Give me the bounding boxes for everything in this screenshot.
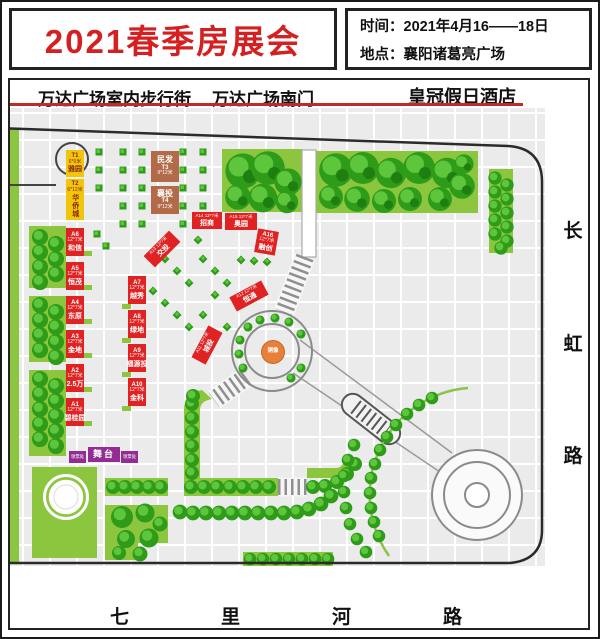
booth-A7-name: 越秀 (130, 293, 144, 301)
booth-A16: A1612*7米融创 (254, 228, 279, 255)
booth-A10: A1012*7米金科 (128, 378, 146, 406)
booth-A12: A12 12*7米恒通 (229, 280, 268, 311)
booth-A5: A512*7米恒茂 (66, 262, 84, 290)
booth-A8-size: 12*7米 (129, 320, 144, 325)
booth-T2-size: 6*12米 (67, 188, 82, 193)
booth-T4: 襄投T49*12米 (151, 186, 179, 214)
road-changhong: 长虹路 (559, 216, 587, 468)
booth-T1-name: 雅园 (68, 166, 82, 174)
booth-A1-size: 12*7米 (67, 408, 82, 413)
booth-A9: A912*7米福源投 (128, 344, 146, 372)
booth-A3-name: 金地 (68, 347, 82, 355)
booth-A14-name: 招商 (200, 220, 214, 228)
road-name-char: 路 (443, 602, 462, 629)
booth-A9-size: 12*7米 (129, 354, 144, 359)
north-edge-red-line (10, 103, 523, 106)
expo-title: 2021春季房展会 (45, 15, 301, 63)
booth-A16-name: 融创 (258, 243, 273, 253)
booth-T2: T26*12米华侨城 (66, 179, 84, 220)
booth-A11: A11 12*7米城投 (191, 325, 222, 364)
landmark-wanda-walkstreet: 万达广场室内步行街 (38, 85, 191, 110)
booth-A8: A812*7米绿地 (128, 310, 146, 338)
booth-statue: 铜像 (261, 340, 285, 364)
booth-A2-name: 2.5万 (67, 381, 84, 389)
booth-stage-stage: 舞台 (93, 450, 115, 460)
booth-ticket-left-tk: 领票处 (71, 455, 85, 460)
booth-A10-name: 金科 (130, 395, 144, 403)
road-name-char: 虹 (563, 329, 582, 356)
booth-A2-size: 12*7米 (67, 374, 82, 379)
road-name-char: 长 (563, 216, 582, 243)
expo-site-plan-poster: { "header": { "title": "2021春季房展会", "tim… (0, 0, 600, 639)
booth-A15: A15 12*7米奥园 (225, 213, 257, 230)
booth-statue-st: 铜像 (267, 349, 278, 355)
expo-location: 地点：襄阳诸葛亮广场 (360, 43, 589, 64)
road-name-char: 路 (563, 441, 582, 468)
booth-A13: A13 12*7米交投 (144, 231, 181, 268)
road-name-char: 里 (221, 602, 240, 629)
booth-A15-sz: A15 12*7米 (229, 215, 252, 220)
title-box: 2021春季房展会 (9, 8, 337, 70)
booth-T4-size: 9*12米 (157, 205, 172, 210)
landmark-wanda-southgate: 万达广场南门 (212, 85, 314, 110)
road-name-char: 河 (332, 602, 351, 629)
booth-A8-name: 绿地 (130, 327, 144, 335)
booth-A1: A112*7米碧桂园 (66, 398, 84, 426)
booth-stage: 舞台 (88, 447, 120, 462)
booth-T1: T16*6米雅园 (66, 150, 84, 177)
booth-A7: A712*7米越秀 (128, 276, 146, 304)
road-name-char: 七 (110, 602, 129, 629)
booth-layer: T16*6米雅园T26*12米华侨城民发T39*12米襄投T49*12米A612… (10, 108, 555, 570)
booth-T3: 民发T39*12米 (151, 151, 179, 182)
booth-A10-size: 12*7米 (129, 388, 144, 393)
booth-T4-name-lg: 襄投 (157, 190, 173, 199)
booth-A4-size: 12*7米 (67, 306, 82, 311)
booth-A14: A14 12*7米招商 (192, 212, 222, 229)
booth-T2-name-v: 华侨城 (71, 194, 79, 218)
booth-A7-size: 12*7米 (129, 286, 144, 291)
expo-time: 时间：2021年4月16——18日 (360, 15, 589, 36)
booth-ticket-left: 领票处 (69, 451, 86, 463)
booth-A6-size: 12*7米 (67, 238, 82, 243)
booth-A1-name: 碧桂园 (65, 415, 86, 423)
booth-A3: A312*7米金地 (66, 330, 84, 358)
site-plan-map: T16*6米雅园T26*12米华侨城民发T39*12米襄投T49*12米A612… (10, 108, 555, 570)
booth-A5-size: 12*7米 (67, 272, 82, 277)
booth-A4: A412*7米东原 (66, 296, 84, 324)
booth-A15-name: 奥园 (234, 221, 248, 229)
road-qilihe: 七里河路 (110, 602, 462, 629)
booth-A3-size: 12*7米 (67, 340, 82, 345)
booth-T1-size: 6*6米 (69, 160, 82, 165)
booth-A4-name: 东原 (68, 313, 82, 321)
info-box: 时间：2021年4月16——18日 地点：襄阳诸葛亮广场 (345, 8, 592, 70)
booth-ticket-right-tk: 领票处 (123, 455, 137, 460)
booth-A14-sz: A14 12*7米 (195, 214, 218, 219)
booth-T3-size: 9*12米 (157, 171, 172, 176)
booth-A2: A212*7米2.5万 (66, 364, 84, 392)
booth-A6: A612*7米和信 (66, 228, 84, 256)
booth-A5-name: 恒茂 (68, 279, 82, 287)
booth-A6-name: 和信 (68, 245, 82, 253)
booth-A9-name: 福源投 (127, 361, 148, 369)
booth-ticket-right: 领票处 (121, 451, 138, 463)
booth-T3-name-lg: 民发 (157, 156, 173, 165)
